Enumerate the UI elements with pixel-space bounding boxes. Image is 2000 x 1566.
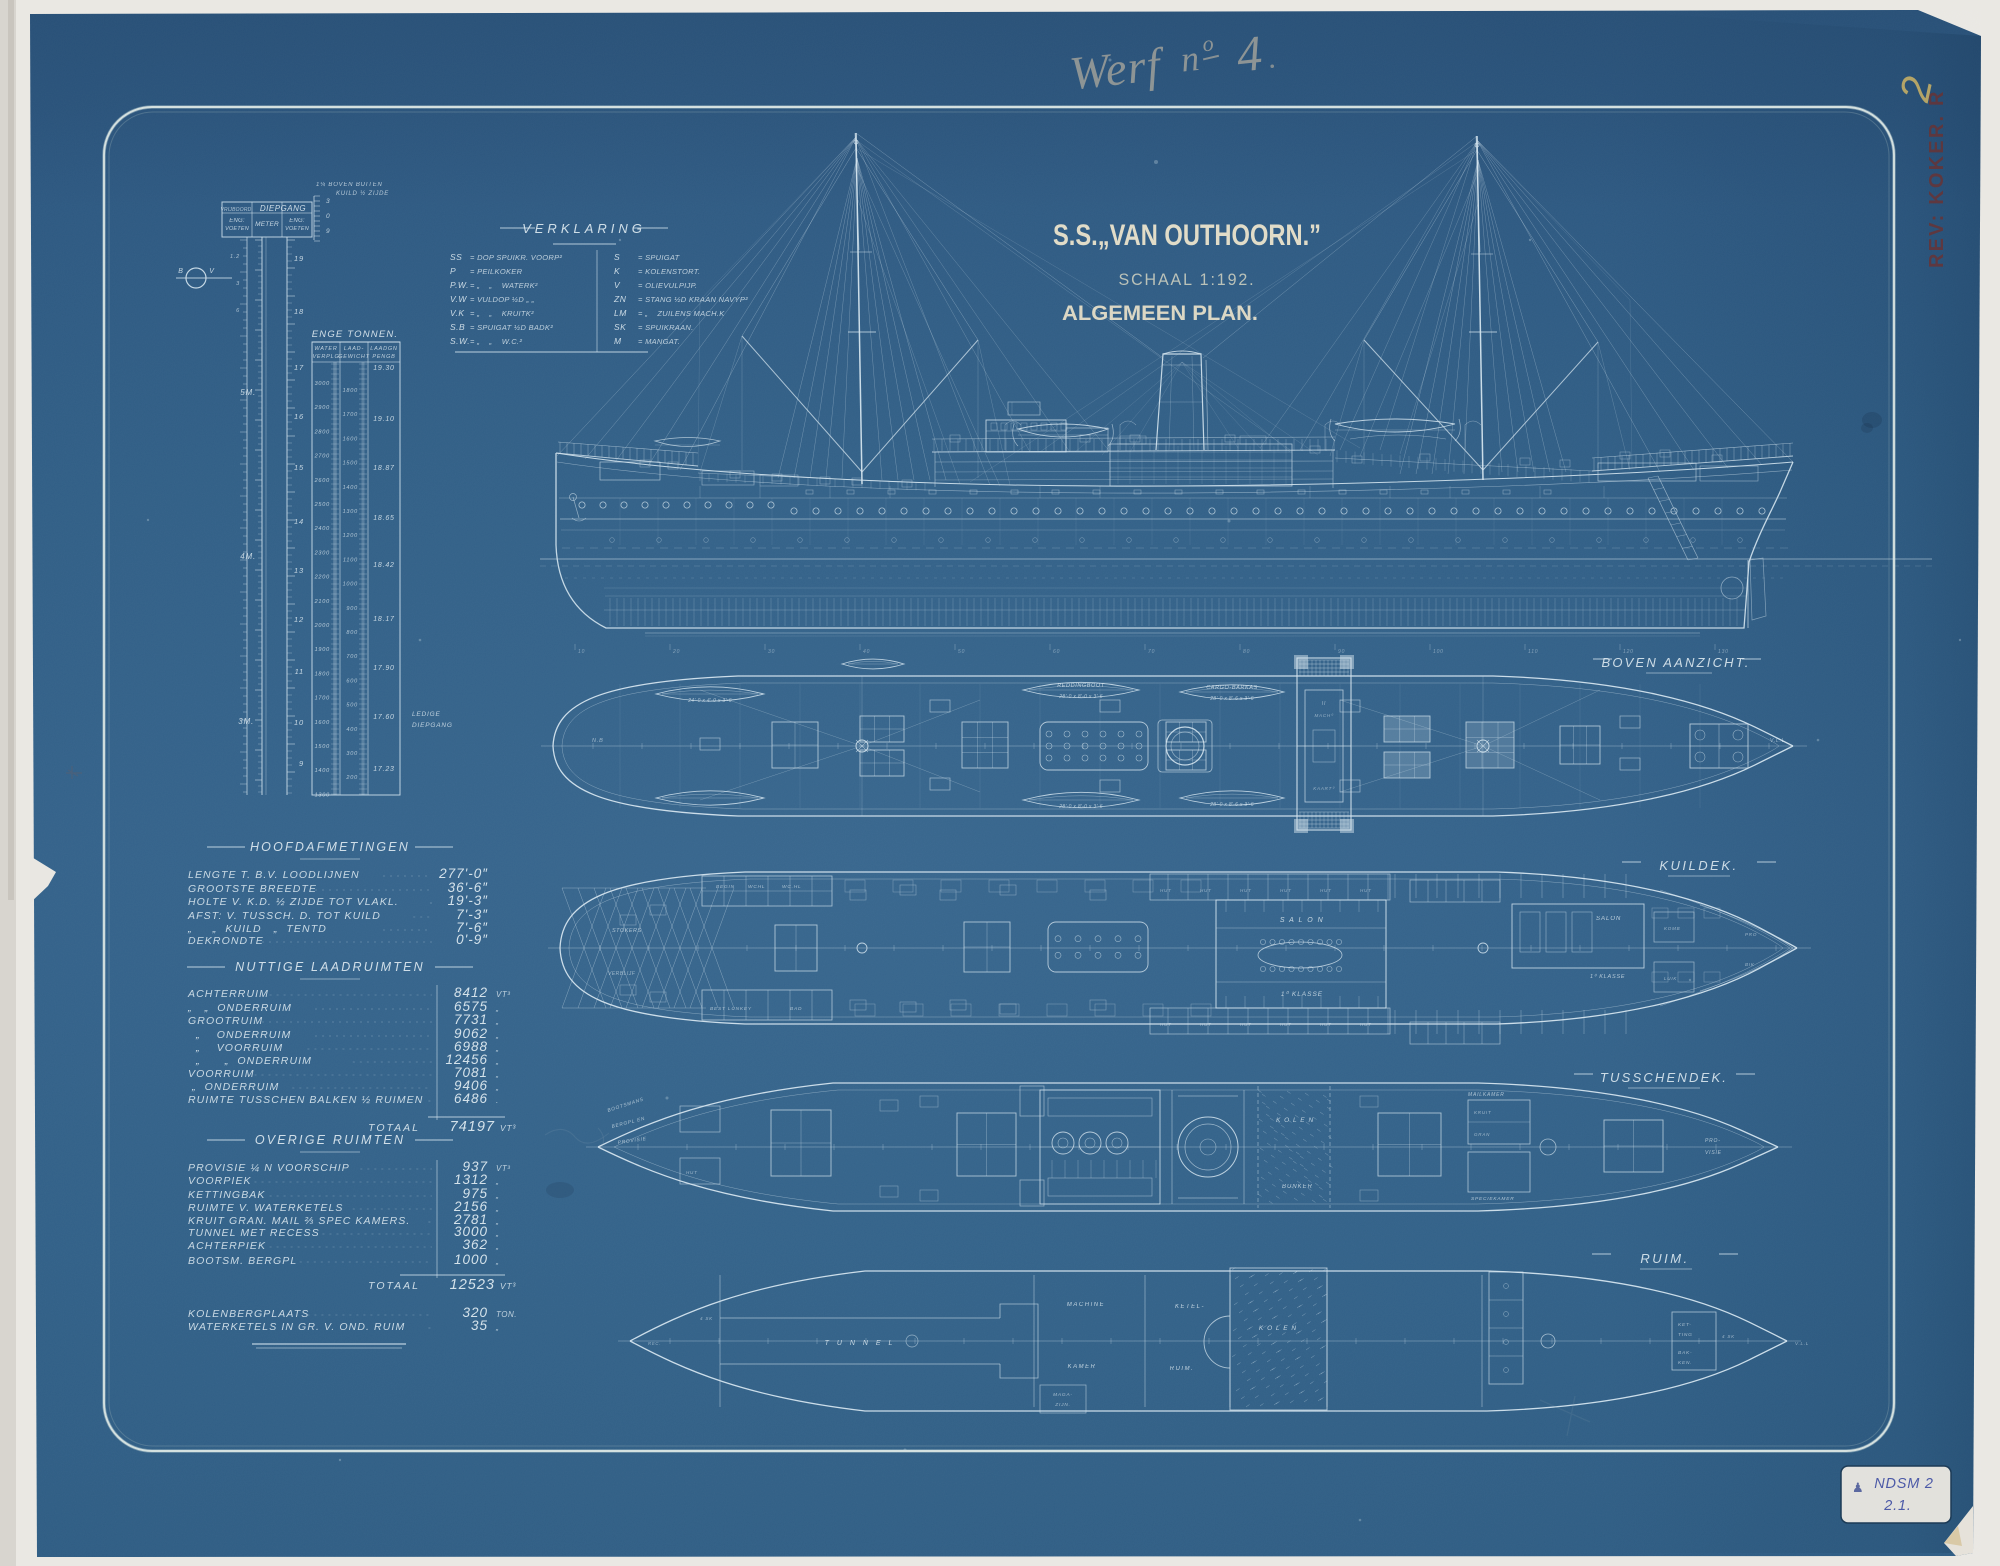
svg-text:19: 19 — [294, 254, 304, 263]
svg-text:= STANG ½D KRAAN NAVYP²: = STANG ½D KRAAN NAVYP² — [638, 295, 748, 304]
svg-text:WATER: WATER — [314, 346, 337, 352]
svg-text:= SPUIGAT ½D BADK²: = SPUIGAT ½D BADK² — [470, 323, 553, 332]
svg-text:.: . — [496, 1096, 499, 1105]
svg-text:„: „ — [495, 1229, 499, 1238]
svg-text:HUT: HUT — [1240, 888, 1252, 893]
svg-text:RUIMTE TUSSCHEN BALKEN ½ RUIME: RUIMTE TUSSCHEN BALKEN ½ RUIMEN — [188, 1094, 423, 1106]
svg-text:7731: 7731 — [454, 1012, 488, 1027]
svg-text:1400: 1400 — [315, 768, 331, 774]
svg-text:ZIJN.: ZIJN. — [1054, 1402, 1070, 1408]
svg-text:M: M — [614, 336, 622, 346]
svg-text:2.1.: 2.1. — [1883, 1498, 1911, 1514]
svg-text:28'-0 x 8'-6 x 3'-6: 28'-0 x 8'-6 x 3'-6 — [1209, 802, 1254, 808]
svg-text:18.17: 18.17 — [373, 616, 395, 623]
svg-text:BOOTSM. BERGPL: BOOTSM. BERGPL — [188, 1255, 297, 1267]
svg-text:„ „ ONDERRUIM: „ „ ONDERRUIM — [188, 1055, 312, 1067]
svg-text:DIEPGANG: DIEPGANG — [260, 204, 306, 213]
svg-text:2000: 2000 — [314, 623, 331, 629]
svg-text:TOTAAL: TOTAAL — [368, 1280, 420, 1292]
svg-text:„: „ — [495, 1057, 499, 1066]
svg-text:PROVISIE ¼ N VOORSCHIP: PROVISIE ¼ N VOORSCHIP — [188, 1162, 350, 1174]
svg-text:KAMER: KAMER — [1068, 1364, 1097, 1370]
svg-text:VISIE: VISIE — [1705, 1150, 1722, 1156]
svg-text:P.W.: P.W. — [450, 280, 469, 290]
svg-text:WC.HL: WC.HL — [782, 884, 801, 890]
svg-text:1200: 1200 — [343, 533, 359, 539]
svg-text:600: 600 — [346, 678, 358, 684]
svg-text:900: 900 — [346, 606, 358, 612]
svg-text:„: „ — [495, 1070, 499, 1079]
svg-text:40: 40 — [863, 649, 870, 655]
svg-text:9: 9 — [326, 228, 330, 235]
svg-text:GROOTRUIM: GROOTRUIM — [188, 1015, 263, 1027]
svg-text:3: 3 — [326, 198, 330, 205]
svg-text:3: 3 — [236, 281, 240, 287]
svg-text:NDSM 2: NDSM 2 — [1874, 1476, 1934, 1492]
svg-text:17.90: 17.90 — [373, 665, 395, 672]
svg-text:„: „ — [495, 1004, 499, 1013]
svg-text:17.23: 17.23 — [373, 766, 395, 773]
svg-text:= KOLENSTORT.: = KOLENSTORT. — [638, 267, 700, 276]
svg-text:14: 14 — [294, 517, 304, 526]
svg-text:AFST: V. TUSSCH. D. TOT KUILD: AFST: V. TUSSCH. D. TOT KUILD — [187, 910, 381, 922]
svg-text:1500: 1500 — [315, 744, 331, 750]
svg-text:KEN.: KEN. — [1678, 1360, 1692, 1366]
svg-text:PRO-: PRO- — [1705, 1138, 1721, 1144]
svg-text:HUT: HUT — [1320, 888, 1332, 893]
svg-text:1700: 1700 — [315, 696, 331, 702]
svg-text:„: „ — [495, 1177, 499, 1186]
svg-text:DEKRONDTE: DEKRONDTE — [188, 935, 264, 947]
svg-text:28'-0 x 8'-0 x 3'-6: 28'-0 x 8'-0 x 3'-6 — [1058, 804, 1103, 810]
svg-text:= „ „ WATERK²: = „ „ WATERK² — [470, 281, 538, 290]
svg-text:„ ONDERRUIM: „ ONDERRUIM — [188, 1081, 279, 1093]
svg-text:WCHL: WCHL — [748, 884, 765, 890]
svg-text:1⁰ KLASSE: 1⁰ KLASSE — [1590, 973, 1625, 980]
svg-text:800: 800 — [346, 630, 358, 636]
svg-text:WATERKETELS IN GR. V. OND. RUI: WATERKETELS IN GR. V. OND. RUIM — [188, 1321, 405, 1333]
svg-text:17: 17 — [294, 363, 304, 372]
svg-text:12: 12 — [294, 615, 304, 624]
svg-text:15: 15 — [294, 463, 304, 472]
svg-text:HUT: HUT — [1320, 1022, 1332, 1027]
svg-text:VOETEN: VOETEN — [225, 226, 249, 232]
svg-text:SCHAAL 1:192.: SCHAAL 1:192. — [1119, 270, 1256, 289]
svg-text:HOLTE V. K.D. ½ ZIJDE TOT VLAK: HOLTE V. K.D. ½ ZIJDE TOT VLAKL. — [188, 896, 399, 908]
svg-text:„: „ — [495, 1017, 499, 1026]
svg-text:30: 30 — [768, 649, 775, 655]
svg-text:19.30: 19.30 — [373, 365, 395, 372]
svg-text:BEST LUNKEY: BEST LUNKEY — [710, 1006, 752, 1012]
svg-text:Werf: Werf — [1067, 39, 1168, 101]
svg-text:V: V — [209, 268, 215, 275]
svg-text:LM: LM — [614, 308, 627, 318]
svg-text:1000: 1000 — [343, 582, 359, 588]
svg-text:28'-0 x 8'-0 x 3'-6: 28'-0 x 8'-0 x 3'-6 — [1058, 694, 1103, 700]
svg-text:LEDIGE: LEDIGE — [412, 711, 441, 718]
svg-text:2900: 2900 — [314, 405, 331, 411]
svg-text:20: 20 — [672, 649, 680, 655]
svg-text:„: „ — [495, 1204, 499, 1213]
svg-text:KOMB: KOMB — [1664, 926, 1680, 931]
svg-text:CARGO-BARKAS: CARGO-BARKAS — [1206, 685, 1258, 691]
svg-text:BAK-: BAK- — [1678, 1350, 1692, 1356]
svg-text:KRUIT GRAN. MAIL ⅔ SPEC KAMERS: KRUIT GRAN. MAIL ⅔ SPEC KAMERS. — [188, 1215, 410, 1227]
svg-text:4M.: 4M. — [240, 552, 256, 561]
svg-text:STOKERS: STOKERS — [612, 928, 642, 934]
svg-text:SALON: SALON — [1596, 916, 1621, 922]
svg-text:2200: 2200 — [314, 575, 331, 581]
svg-text:60: 60 — [1053, 649, 1060, 655]
svg-text:3000: 3000 — [315, 381, 331, 387]
svg-text:HUT: HUT — [1360, 888, 1372, 893]
svg-text:KUILDEK.: KUILDEK. — [1659, 858, 1738, 873]
svg-text:50: 50 — [958, 649, 965, 655]
svg-text:REV: KOKER. R: REV: KOKER. R — [1926, 89, 1948, 268]
svg-text:HUT: HUT — [1160, 1022, 1172, 1027]
svg-text:BOVEN AANZICHT.: BOVEN AANZICHT. — [1601, 655, 1750, 670]
svg-text:„: „ — [495, 1044, 499, 1053]
svg-text:VT³: VT³ — [496, 990, 510, 999]
svg-text:24'-0 x 4'-0 x 3'-6: 24'-0 x 4'-0 x 3'-6 — [687, 698, 732, 704]
svg-text:LENGTE T. B.V. LOODLIJNEN: LENGTE T. B.V. LOODLIJNEN — [188, 869, 360, 881]
svg-text:19.10: 19.10 — [373, 416, 395, 423]
svg-text:= MANGAT.: = MANGAT. — [638, 337, 680, 346]
svg-text:90: 90 — [1338, 649, 1345, 655]
svg-text:28'-0 x 8'-6 x 3'-6: 28'-0 x 8'-6 x 3'-6 — [1209, 696, 1254, 702]
svg-text:K O L E N: K O L E N — [1276, 1117, 1314, 1124]
svg-text:1700: 1700 — [343, 412, 359, 418]
svg-text:1312: 1312 — [454, 1172, 488, 1187]
svg-text:2800: 2800 — [314, 429, 331, 435]
svg-text:4 SK: 4 SK — [1722, 1334, 1735, 1339]
svg-text:VOORPIEK: VOORPIEK — [188, 1175, 252, 1187]
svg-text:HUT: HUT — [686, 1170, 698, 1175]
svg-text:V.L.L: V.L.L — [1770, 738, 1785, 744]
svg-text:METER: METER — [255, 221, 279, 228]
svg-text:ENG:: ENG: — [229, 218, 245, 224]
svg-text:KET-: KET- — [1678, 1322, 1692, 1328]
svg-text:„: „ — [495, 1191, 499, 1200]
svg-text:18.42: 18.42 — [373, 562, 395, 569]
svg-text:DIEPGANG: DIEPGANG — [412, 722, 453, 729]
svg-text:MACHINE: MACHINE — [1067, 1302, 1105, 1308]
svg-text:10: 10 — [578, 649, 585, 655]
svg-text:S.B: S.B — [450, 322, 465, 332]
svg-text:VOETEN: VOETEN — [285, 226, 309, 232]
svg-text:ZN: ZN — [613, 294, 627, 304]
svg-text:= „ ZUILENS MACH.K: = „ ZUILENS MACH.K — [638, 309, 725, 318]
svg-text:GRAN: GRAN — [1474, 1132, 1490, 1137]
svg-text:= „ „ W.C.²: = „ „ W.C.² — [470, 337, 522, 346]
svg-text:362: 362 — [462, 1237, 488, 1252]
svg-text:12523: 12523 — [450, 1277, 495, 1293]
svg-text:110: 110 — [1528, 649, 1538, 655]
svg-text:MAILKAMER: MAILKAMER — [1468, 1092, 1505, 1098]
svg-text:8412: 8412 — [454, 985, 488, 1000]
svg-text:1600: 1600 — [343, 436, 359, 442]
svg-text:VT³: VT³ — [500, 1281, 516, 1291]
svg-text:74197: 74197 — [450, 1119, 495, 1135]
svg-text:1100: 1100 — [343, 557, 358, 563]
svg-text:B: B — [178, 268, 183, 275]
svg-text:„: „ — [495, 1323, 499, 1332]
svg-text:HUT: HUT — [1280, 1022, 1292, 1027]
svg-text:ACHTERPIEK: ACHTERPIEK — [187, 1240, 266, 1252]
svg-text:VERPLG: VERPLG — [312, 354, 339, 360]
svg-text:PENGB: PENGB — [372, 354, 395, 360]
svg-text:1300: 1300 — [343, 509, 359, 515]
svg-text:P: P — [450, 266, 456, 276]
svg-text:„ VOORRUIM: „ VOORRUIM — [188, 1042, 283, 1054]
svg-text:NUTTIGE LAADRUIMTEN: NUTTIGE LAADRUIMTEN — [235, 960, 425, 974]
svg-text:HUT: HUT — [1280, 888, 1292, 893]
svg-text:500: 500 — [346, 703, 358, 709]
svg-text:T U N N E L: T U N N E L — [825, 1340, 896, 1347]
svg-text:♟: ♟ — [1852, 1480, 1864, 1495]
svg-text:TON.: TON. — [496, 1310, 517, 1319]
svg-text:11: 11 — [295, 667, 304, 676]
svg-text:1800: 1800 — [315, 671, 331, 677]
svg-text:GEWICHT: GEWICHT — [338, 354, 370, 360]
svg-text:= DOP SPUIKR. VOORP²: = DOP SPUIKR. VOORP² — [470, 253, 562, 262]
svg-text:SS: SS — [450, 252, 462, 262]
svg-text:9: 9 — [299, 759, 304, 768]
svg-text:„: „ — [495, 1217, 499, 1226]
svg-text:HUT: HUT — [1360, 1022, 1372, 1027]
svg-text:V.K: V.K — [450, 308, 465, 318]
svg-text:= PEILKOKER: = PEILKOKER — [470, 267, 523, 276]
svg-text:= VULDOP ½D „ „: = VULDOP ½D „ „ — [470, 295, 535, 304]
svg-text:VERBLIJF: VERBLIJF — [608, 971, 636, 977]
svg-text:HUT: HUT — [1200, 888, 1212, 893]
svg-text:VT³: VT³ — [500, 1123, 516, 1133]
svg-text:1600: 1600 — [315, 720, 331, 726]
svg-text:18.65: 18.65 — [373, 515, 395, 522]
svg-text:35: 35 — [471, 1318, 488, 1333]
svg-text:70: 70 — [1148, 649, 1155, 655]
svg-text:700: 700 — [346, 654, 358, 660]
svg-text:1¼ BOVEN BUITEN: 1¼ BOVEN BUITEN — [316, 182, 383, 188]
svg-text:S.W.: S.W. — [450, 336, 470, 346]
svg-text:1500: 1500 — [343, 461, 359, 467]
svg-text:VERKLARING: VERKLARING — [522, 221, 646, 236]
svg-text:GROOTSTE BREEDTE: GROOTSTE BREEDTE — [188, 883, 317, 895]
svg-text:2500: 2500 — [314, 502, 331, 508]
svg-text:RUIM.: RUIM. — [1170, 1366, 1195, 1372]
svg-text:2700: 2700 — [314, 454, 331, 460]
svg-text:KAART⁰: KAART⁰ — [1313, 786, 1335, 791]
svg-text:18: 18 — [294, 307, 304, 316]
svg-text:= „ „ KRUITK²: = „ „ KRUITK² — [470, 309, 534, 318]
svg-text:3M.: 3M. — [238, 717, 254, 726]
svg-text:2400: 2400 — [314, 526, 331, 532]
svg-text:V.L.L: V.L.L — [1795, 1341, 1809, 1346]
svg-text:4 SK: 4 SK — [700, 1316, 713, 1321]
svg-text:RUIMTE V. WATERKETELS: RUIMTE V. WATERKETELS — [188, 1202, 344, 1214]
svg-text:LAAD-: LAAD- — [344, 346, 364, 352]
svg-text:K: K — [614, 266, 620, 276]
svg-text:5M.: 5M. — [240, 388, 256, 397]
svg-text:17.60: 17.60 — [373, 714, 395, 721]
svg-text:2600: 2600 — [314, 478, 331, 484]
svg-text:„: „ — [495, 1257, 499, 1266]
svg-text:KRUIT: KRUIT — [1474, 1110, 1492, 1115]
svg-text:LUIK: LUIK — [1664, 976, 1677, 981]
svg-text:ENGE TONNEN.: ENGE TONNEN. — [312, 329, 399, 340]
svg-text:S A L O N: S A L O N — [1280, 917, 1324, 924]
svg-text:1800: 1800 — [343, 388, 359, 394]
svg-text:BUNKER: BUNKER — [1282, 1184, 1313, 1190]
svg-text:0: 0 — [326, 213, 330, 220]
svg-text:S.S.„VAN OUTHOORN.”: S.S.„VAN OUTHOORN.” — [1053, 219, 1321, 252]
svg-text:1300: 1300 — [315, 792, 331, 798]
svg-text:= SPUIKRAAN.: = SPUIKRAAN. — [638, 323, 694, 332]
svg-text:2300: 2300 — [314, 550, 331, 556]
svg-text:REDDINGBOOT: REDDINGBOOT — [1057, 683, 1105, 689]
svg-text:1.2: 1.2 — [230, 254, 240, 260]
svg-text:S: S — [614, 252, 620, 262]
svg-text:BAD: BAD — [790, 1006, 802, 1012]
svg-text:LAADGN: LAADGN — [370, 346, 397, 352]
svg-text:HUT: HUT — [1160, 888, 1172, 893]
svg-text:„: „ — [495, 1031, 499, 1040]
svg-text:KETEL-: KETEL- — [1175, 1304, 1205, 1310]
svg-text:KUILD ½ ZIJDE: KUILD ½ ZIJDE — [336, 190, 389, 197]
svg-text:II: II — [1322, 701, 1326, 707]
svg-text:100: 100 — [1433, 649, 1444, 655]
svg-text:PRO: PRO — [1745, 932, 1757, 937]
svg-text:BIK: BIK — [1745, 962, 1755, 967]
svg-text:VRIJBOORD: VRIJBOORD — [221, 207, 252, 213]
svg-text:MAGA-: MAGA- — [1053, 1392, 1073, 1398]
svg-text:MACH⁰: MACH⁰ — [1314, 713, 1333, 718]
svg-text:REC.: REC. — [648, 1341, 661, 1346]
svg-text:HUT: HUT — [1240, 1022, 1252, 1027]
svg-text:V: V — [614, 280, 621, 290]
svg-text:HOOFDAFMETINGEN: HOOFDAFMETINGEN — [250, 840, 410, 854]
svg-text:VOORRUIM: VOORRUIM — [188, 1068, 255, 1080]
svg-text:VT³: VT³ — [496, 1164, 510, 1173]
svg-text:N.B: N.B — [592, 738, 604, 744]
svg-text:„ ONDERRUIM: „ ONDERRUIM — [188, 1029, 291, 1041]
svg-text:OVERIGE RUIMTEN: OVERIGE RUIMTEN — [255, 1133, 405, 1147]
svg-text:„ „ ONDERRUIM: „ „ ONDERRUIM — [187, 1002, 292, 1014]
svg-text:200: 200 — [345, 775, 358, 781]
svg-text:„: „ — [495, 1083, 499, 1092]
svg-text:80: 80 — [1243, 649, 1250, 655]
svg-text:277'-0″: 277'-0″ — [438, 866, 488, 881]
svg-text:400: 400 — [346, 727, 358, 733]
svg-text:1900: 1900 — [315, 647, 331, 653]
svg-text:= SPUIGAT: = SPUIGAT — [638, 253, 681, 262]
svg-text:TUSSCHENDEK.: TUSSCHENDEK. — [1600, 1070, 1728, 1085]
svg-text:K O L E N: K O L E N — [1259, 1325, 1297, 1332]
svg-text:ENG:: ENG: — [289, 218, 305, 224]
svg-text:13: 13 — [294, 566, 304, 575]
svg-text:HUT: HUT — [1200, 1022, 1212, 1027]
svg-text:19'-3″: 19'-3″ — [448, 893, 489, 908]
svg-text:TUNNEL MET RECESS: TUNNEL MET RECESS — [188, 1227, 320, 1239]
svg-text:SPECIEKAMER: SPECIEKAMER — [1471, 1196, 1514, 1202]
svg-text:= OLIEVULPIJP.: = OLIEVULPIJP. — [638, 281, 697, 290]
svg-text:RUIM.: RUIM. — [1640, 1251, 1689, 1266]
svg-text:300: 300 — [346, 751, 358, 757]
svg-text:6: 6 — [236, 308, 240, 314]
svg-text:V.W: V.W — [450, 294, 467, 304]
svg-text:SK: SK — [614, 322, 626, 332]
svg-text:TING: TING — [1678, 1332, 1693, 1338]
svg-text:1000: 1000 — [454, 1252, 488, 1267]
svg-text:0'-9″: 0'-9″ — [456, 932, 488, 947]
svg-text:BEGIN: BEGIN — [716, 884, 735, 890]
svg-text:1400: 1400 — [343, 485, 359, 491]
svg-text:KOLENBERGPLAATS: KOLENBERGPLAATS — [188, 1308, 309, 1320]
svg-text:2100: 2100 — [314, 599, 331, 605]
svg-text:16: 16 — [294, 412, 304, 421]
svg-text:ACHTERRUIM: ACHTERRUIM — [187, 988, 269, 1000]
svg-text:„: „ — [495, 1242, 499, 1251]
svg-text:„ „ KUILD „ TENTD: „ „ KUILD „ TENTD — [187, 923, 327, 935]
svg-text:10: 10 — [294, 718, 304, 727]
svg-text:18.87: 18.87 — [373, 465, 395, 472]
svg-text:6486: 6486 — [454, 1091, 488, 1106]
svg-text:KETTINGBAK: KETTINGBAK — [188, 1189, 266, 1201]
